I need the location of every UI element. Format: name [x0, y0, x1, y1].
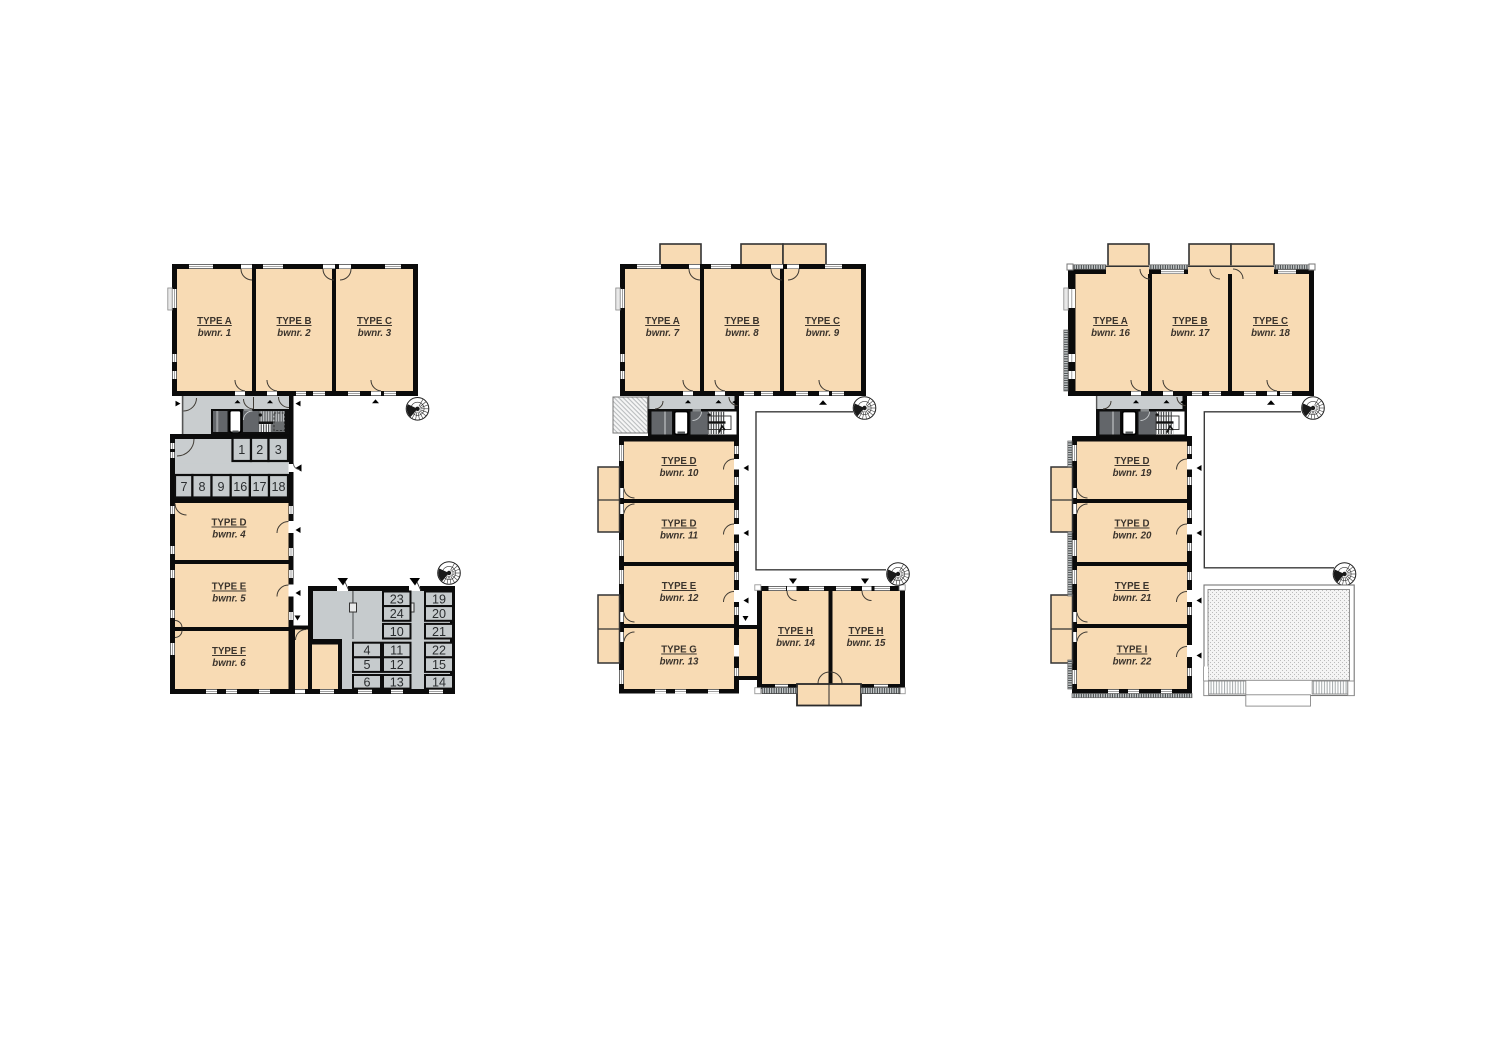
svg-text:TYPE E: TYPE E [662, 581, 697, 592]
svg-text:TYPE H: TYPE H [778, 626, 813, 637]
svg-text:bwnr. 16: bwnr. 16 [1091, 328, 1130, 339]
svg-text:6: 6 [363, 675, 370, 689]
svg-text:bwnr. 9: bwnr. 9 [806, 328, 840, 339]
svg-text:TYPE C: TYPE C [1253, 316, 1288, 327]
svg-text:TYPE A: TYPE A [1093, 316, 1128, 327]
svg-text:TYPE A: TYPE A [645, 316, 680, 327]
svg-text:TYPE D: TYPE D [662, 519, 697, 530]
svg-text:bwnr. 11: bwnr. 11 [660, 531, 698, 542]
svg-text:bwnr. 21: bwnr. 21 [1113, 593, 1152, 604]
svg-text:bwnr. 12: bwnr. 12 [660, 593, 699, 604]
svg-text:16: 16 [233, 480, 247, 494]
svg-text:bwnr. 18: bwnr. 18 [1251, 328, 1290, 339]
svg-text:11: 11 [390, 644, 403, 658]
svg-text:bwnr. 5: bwnr. 5 [212, 594, 246, 605]
svg-text:1: 1 [238, 443, 245, 457]
svg-text:22: 22 [432, 644, 446, 658]
svg-text:bwnr. 10: bwnr. 10 [660, 468, 699, 479]
svg-text:3: 3 [275, 443, 282, 457]
svg-text:bwnr. 8: bwnr. 8 [725, 328, 759, 339]
svg-text:TYPE E: TYPE E [212, 582, 247, 593]
svg-text:bwnr. 2: bwnr. 2 [277, 328, 311, 339]
svg-text:14: 14 [432, 675, 446, 689]
svg-text:TYPE B: TYPE B [725, 316, 760, 327]
svg-text:18: 18 [271, 480, 285, 494]
svg-text:4: 4 [363, 644, 370, 658]
svg-text:12: 12 [390, 658, 404, 672]
svg-text:bwnr. 3: bwnr. 3 [358, 328, 392, 339]
svg-text:TYPE I: TYPE I [1117, 645, 1148, 656]
svg-text:bwnr. 19: bwnr. 19 [1113, 468, 1152, 479]
svg-text:TYPE D: TYPE D [1115, 519, 1150, 530]
svg-text:TYPE G: TYPE G [661, 645, 697, 656]
svg-text:bwnr. 1: bwnr. 1 [198, 328, 231, 339]
svg-text:TYPE B: TYPE B [277, 316, 312, 327]
svg-text:19: 19 [432, 592, 446, 606]
svg-text:bwnr. 4: bwnr. 4 [212, 530, 246, 541]
svg-text:17: 17 [252, 480, 266, 494]
svg-text:TYPE C: TYPE C [805, 316, 840, 327]
svg-text:8: 8 [198, 480, 205, 494]
svg-text:bwnr. 7: bwnr. 7 [646, 328, 680, 339]
svg-text:24: 24 [390, 607, 404, 621]
svg-text:7: 7 [180, 480, 187, 494]
svg-text:bwnr. 13: bwnr. 13 [660, 657, 699, 668]
svg-text:TYPE D: TYPE D [1115, 456, 1150, 467]
svg-text:TYPE E: TYPE E [1115, 581, 1150, 592]
svg-text:bwnr. 14: bwnr. 14 [776, 638, 815, 649]
svg-text:bwnr. 6: bwnr. 6 [212, 658, 246, 669]
svg-text:TYPE A: TYPE A [197, 316, 232, 327]
svg-text:2: 2 [256, 443, 263, 457]
svg-text:TYPE D: TYPE D [212, 518, 247, 529]
svg-text:TYPE C: TYPE C [357, 316, 392, 327]
svg-text:TYPE F: TYPE F [212, 646, 246, 657]
svg-text:10: 10 [390, 625, 404, 639]
svg-text:15: 15 [432, 658, 446, 672]
svg-text:13: 13 [390, 675, 404, 689]
svg-text:bwnr. 15: bwnr. 15 [847, 638, 886, 649]
svg-text:5: 5 [363, 658, 370, 672]
svg-text:23: 23 [390, 592, 404, 606]
svg-text:9: 9 [217, 480, 224, 494]
svg-text:20: 20 [432, 607, 446, 621]
svg-text:bwnr. 20: bwnr. 20 [1113, 531, 1152, 542]
svg-text:TYPE H: TYPE H [849, 626, 884, 637]
svg-text:21: 21 [432, 625, 446, 639]
svg-text:TYPE D: TYPE D [662, 456, 697, 467]
svg-text:TYPE B: TYPE B [1173, 316, 1208, 327]
svg-text:bwnr. 22: bwnr. 22 [1113, 657, 1152, 668]
svg-text:bwnr. 17: bwnr. 17 [1171, 328, 1210, 339]
